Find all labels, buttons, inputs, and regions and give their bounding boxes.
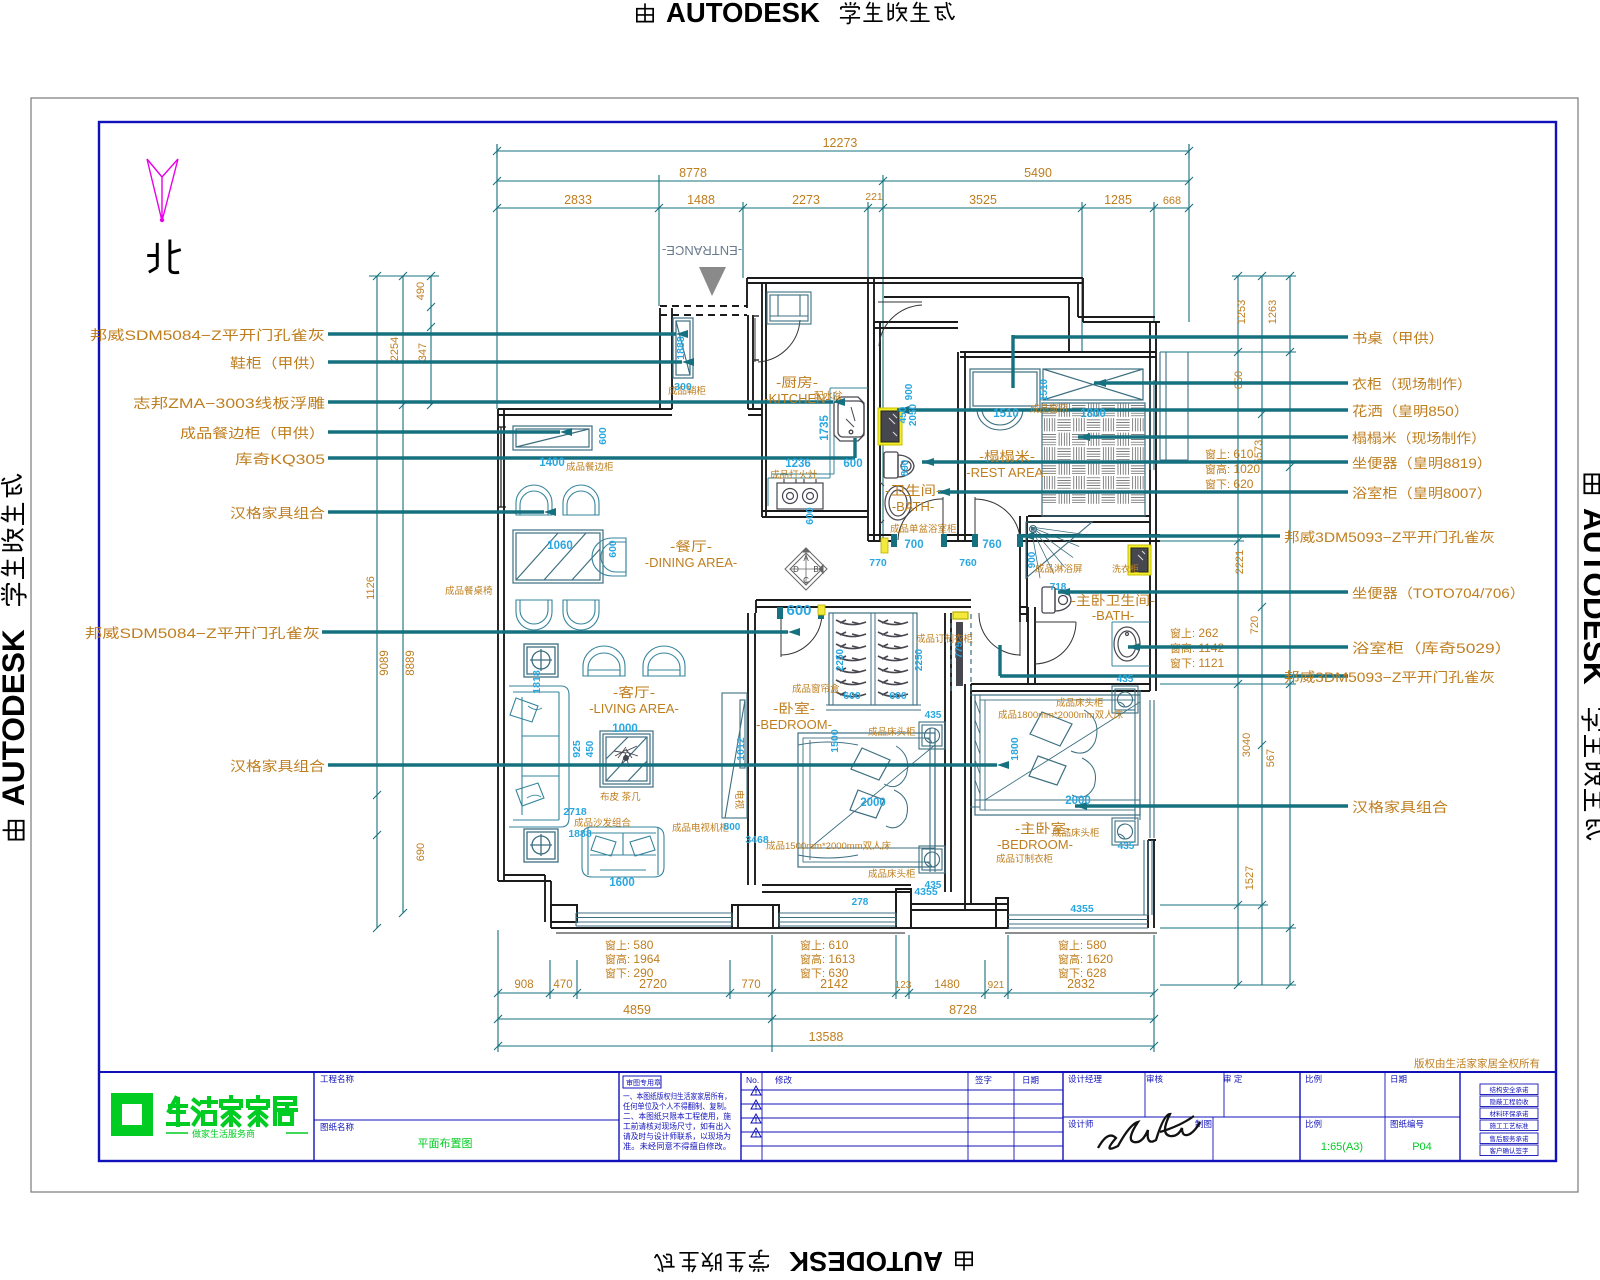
svg-text:邦威3DM5093−Z平开门孔雀灰: 邦威3DM5093−Z平开门孔雀灰 (1284, 530, 1495, 545)
svg-text:2833: 2833 (564, 193, 592, 207)
svg-text:1600: 1600 (609, 877, 635, 889)
svg-text:300: 300 (674, 381, 692, 393)
svg-text:窗上: 580: 窗上: 580 (605, 938, 654, 952)
svg-text:窗上: 610: 窗上: 610 (800, 938, 849, 952)
svg-text:600: 600 (889, 690, 907, 702)
svg-text:成品餐边柜: 成品餐边柜 (566, 461, 614, 473)
svg-text:775: 775 (954, 641, 965, 658)
svg-text:2273: 2273 (792, 193, 820, 207)
svg-text:成品床头柜: 成品床头柜 (868, 726, 916, 738)
svg-text:13588: 13588 (809, 1030, 844, 1044)
svg-text:窗下: 628: 窗下: 628 (1058, 966, 1107, 980)
svg-text:435: 435 (1117, 674, 1134, 685)
svg-text:221: 221 (865, 191, 883, 203)
svg-text:成品床头柜: 成品床头柜 (1052, 827, 1100, 839)
svg-text:图纸名称: 图纸名称 (320, 1122, 355, 1132)
svg-text:窗上: 610: 窗上: 610 (1205, 447, 1254, 461)
svg-text:审核: 审核 (1146, 1074, 1164, 1084)
svg-text:908: 908 (514, 979, 533, 991)
svg-text:结构安全承诺: 结构安全承诺 (1490, 1085, 1530, 1094)
svg-text:567: 567 (1265, 749, 1277, 767)
svg-text:平面布置图: 平面布置图 (418, 1137, 473, 1150)
svg-text:123: 123 (895, 980, 912, 991)
svg-text:客户确认签字: 客户确认签字 (1490, 1146, 1530, 1155)
svg-text:窗高: 1613: 窗高: 1613 (800, 952, 855, 966)
svg-text:435: 435 (925, 710, 942, 721)
svg-text:5490: 5490 (1024, 166, 1052, 180)
svg-text:设计师: 设计师 (1068, 1119, 1094, 1129)
svg-text:日期: 日期 (1390, 1074, 1407, 1084)
svg-text:925: 925 (571, 740, 583, 758)
svg-text:-厨房-: -厨房- (776, 375, 818, 390)
svg-text:一、本图纸版权归生活家家居所有，: 一、本图纸版权归生活家家居所有， (623, 1091, 731, 1101)
svg-text:浴室柜（库奇5029）: 浴室柜（库奇5029） (1352, 640, 1512, 656)
svg-text:售后服务承诺: 售后服务承诺 (1490, 1134, 1530, 1143)
svg-text:770: 770 (741, 979, 760, 991)
svg-text:窗下: 1121: 窗下: 1121 (1170, 656, 1225, 670)
svg-text:窗高: 1020: 窗高: 1020 (1205, 462, 1260, 476)
svg-text:坐便器（皇明8819）: 坐便器（皇明8819） (1352, 456, 1492, 471)
svg-text:-BATH-: -BATH- (892, 499, 934, 514)
svg-text:1527: 1527 (1244, 866, 1256, 890)
svg-text:600: 600 (607, 540, 619, 558)
svg-text:-榻榻米-: -榻榻米- (979, 449, 1035, 464)
svg-text:1:65(A3): 1:65(A3) (1321, 1141, 1363, 1153)
svg-text:1285: 1285 (1104, 193, 1132, 207)
svg-text:榻榻米（现场制作）: 榻榻米（现场制作） (1352, 431, 1486, 446)
svg-text:-卧室-: -卧室- (773, 701, 815, 716)
svg-text:921: 921 (988, 980, 1005, 991)
svg-text:设计经理: 设计经理 (1068, 1074, 1103, 1084)
svg-text:比例: 比例 (1305, 1119, 1322, 1129)
svg-text:窗上: 580: 窗上: 580 (1058, 938, 1107, 952)
svg-text:施工工艺标准: 施工工艺标准 (1490, 1121, 1530, 1130)
svg-text:配水盆: 配水盆 (814, 390, 843, 402)
svg-text:2718: 2718 (563, 806, 587, 818)
svg-text:衣柜（现场制作）: 衣柜（现场制作） (1352, 377, 1472, 392)
svg-text:准。未经同意不得擅自修改。: 准。未经同意不得擅自修改。 (623, 1141, 731, 1151)
svg-text:材料环保承诺: 材料环保承诺 (1490, 1109, 1530, 1118)
svg-text:1236: 1236 (785, 458, 811, 470)
svg-text:成品餐桌椅: 成品餐桌椅 (445, 585, 493, 597)
svg-text:图纸编号: 图纸编号 (1390, 1119, 1424, 1129)
svg-text:12273: 12273 (823, 136, 858, 150)
svg-text:B: B (813, 565, 818, 574)
svg-text:1800: 1800 (1009, 737, 1021, 761)
svg-text:汉格家具组合: 汉格家具组合 (1352, 799, 1449, 815)
svg-text:600: 600 (843, 458, 862, 470)
svg-text:工程名称: 工程名称 (320, 1074, 355, 1084)
svg-text:668: 668 (1163, 195, 1181, 207)
svg-text:成品1500mm*2000mm双人床: 成品1500mm*2000mm双人床 (766, 840, 892, 852)
svg-text:-主卧卫生间-: -主卧卫生间- (1071, 593, 1155, 608)
svg-text:1500: 1500 (829, 729, 841, 753)
svg-text:志邦ZMA−3003线板浮雕: 志邦ZMA−3003线板浮雕 (133, 396, 326, 411)
svg-text:1000: 1000 (612, 723, 638, 735)
svg-text:600: 600 (597, 427, 609, 445)
svg-text:审图专用章: 审图专用章 (626, 1078, 661, 1087)
svg-text:窗下: 630: 窗下: 630 (800, 966, 849, 980)
svg-text:汉格家具组合: 汉格家具组合 (230, 758, 326, 774)
svg-text:1510: 1510 (993, 408, 1019, 420)
svg-text:二、本图纸只限本工程使用，施: 二、本图纸只限本工程使用，施 (623, 1111, 731, 1121)
svg-text:成品床头柜: 成品床头柜 (868, 868, 916, 880)
svg-text:600: 600 (786, 602, 811, 619)
svg-text:请及时与设计师联系，以现场为: 请及时与设计师联系，以现场为 (623, 1131, 731, 1141)
svg-text:成品订制衣柜: 成品订制衣柜 (996, 853, 1054, 865)
svg-text:900: 900 (904, 383, 915, 400)
svg-text:3468: 3468 (745, 834, 769, 846)
svg-text:8778: 8778 (679, 166, 707, 180)
svg-text:-BEDROOM-: -BEDROOM- (756, 717, 832, 732)
svg-text:9089: 9089 (379, 650, 391, 676)
svg-text:800: 800 (724, 822, 741, 833)
svg-text:-DINING AREA-: -DINING AREA- (645, 555, 737, 570)
svg-text:-REST AREA-: -REST AREA- (966, 465, 1047, 480)
svg-text:1888: 1888 (675, 336, 687, 360)
svg-text:-BEDROOM-: -BEDROOM- (997, 837, 1073, 852)
svg-text:1800: 1800 (1080, 408, 1106, 420)
svg-text:1888: 1888 (568, 828, 592, 840)
svg-text:890: 890 (900, 459, 911, 476)
svg-text:邦威3DM5093−Z平开门孔雀灰: 邦威3DM5093−Z平开门孔雀灰 (1284, 670, 1495, 685)
svg-text:347: 347 (417, 343, 429, 361)
svg-text:电视: 电视 (733, 790, 745, 810)
svg-text:成品窗帘: 成品窗帘 (1030, 403, 1068, 415)
svg-text:2050: 2050 (908, 403, 919, 426)
svg-text:D: D (793, 565, 799, 574)
svg-text:窗上: 262: 窗上: 262 (1170, 626, 1219, 640)
svg-text:2221: 2221 (1234, 550, 1246, 574)
svg-text:690: 690 (415, 843, 427, 861)
svg-text:-卫生间-: -卫生间- (885, 483, 941, 498)
svg-text:成品打火灶: 成品打火灶 (770, 469, 818, 481)
svg-text:坐便器（TOTO704/706）: 坐便器（TOTO704/706） (1352, 586, 1525, 601)
svg-text:720: 720 (1249, 616, 1261, 634)
svg-text:比例: 比例 (1305, 1074, 1322, 1084)
svg-text:1480: 1480 (934, 979, 960, 991)
svg-text:8728: 8728 (949, 1003, 977, 1017)
svg-text:1012: 1012 (735, 737, 747, 761)
svg-text:工前请核对现场尺寸，如有出入: 工前请核对现场尺寸，如有出入 (623, 1121, 731, 1131)
svg-text:900: 900 (1027, 551, 1038, 568)
svg-text:-LIVING AREA-: -LIVING AREA- (589, 701, 679, 716)
svg-text:278: 278 (852, 897, 869, 908)
svg-text:1488: 1488 (687, 193, 715, 207)
svg-text:470: 470 (553, 979, 572, 991)
svg-text:650: 650 (1233, 371, 1245, 389)
svg-text:4355: 4355 (1070, 903, 1094, 915)
svg-text:成品床头柜: 成品床头柜 (1056, 697, 1104, 709)
svg-text:1400: 1400 (539, 457, 565, 469)
svg-text:汉格家具组合: 汉格家具组合 (230, 505, 326, 521)
svg-text:760: 760 (959, 557, 977, 569)
svg-text:成品电视机柜: 成品电视机柜 (672, 822, 730, 834)
svg-text:-餐厅-: -餐厅- (670, 539, 712, 554)
svg-text:700: 700 (904, 539, 923, 551)
svg-text:770: 770 (869, 557, 887, 569)
svg-text:成品单盆浴室柜: 成品单盆浴室柜 (890, 523, 957, 535)
svg-text:洗衣柜: 洗衣柜 (1112, 563, 1139, 574)
svg-text:成品餐边柜（甲供）: 成品餐边柜（甲供） (180, 426, 325, 441)
svg-text:修改: 修改 (775, 1075, 793, 1085)
svg-text:日期: 日期 (1022, 1075, 1039, 1085)
svg-text:450: 450 (585, 740, 596, 757)
svg-text:库奇KQ305: 库奇KQ305 (235, 451, 325, 467)
svg-text:718: 718 (1050, 582, 1067, 593)
svg-text:1510: 1510 (1039, 378, 1050, 401)
svg-text:窗下: 620: 窗下: 620 (1205, 477, 1254, 491)
svg-text:-BATH-: -BATH- (1092, 608, 1134, 623)
svg-text:3040: 3040 (1241, 733, 1253, 757)
svg-text:2250: 2250 (835, 648, 846, 671)
svg-text:隐蔽工程验收: 隐蔽工程验收 (1490, 1097, 1530, 1106)
svg-text:浴室柜（皇明8007）: 浴室柜（皇明8007） (1352, 485, 1492, 501)
svg-text:435: 435 (1118, 841, 1135, 852)
svg-text:布皮 茶几: 布皮 茶几 (600, 791, 641, 803)
svg-text:1818: 1818 (531, 670, 543, 694)
svg-text:邦威SDM5084−Z平开门孔雀灰: 邦威SDM5084−Z平开门孔雀灰 (85, 626, 320, 641)
svg-text:成品窗帘盒: 成品窗帘盒 (792, 683, 840, 695)
svg-text:1060: 1060 (547, 540, 573, 552)
svg-text:-ENTRANCE-: -ENTRANCE- (662, 243, 742, 258)
svg-text:1263: 1263 (1267, 300, 1279, 324)
svg-text:C: C (803, 576, 809, 585)
svg-text:600: 600 (843, 690, 861, 702)
svg-text:A: A (803, 554, 809, 563)
svg-text:1126: 1126 (365, 576, 377, 600)
svg-text:书桌（甲供）: 书桌（甲供） (1352, 331, 1444, 346)
svg-text:4859: 4859 (623, 1003, 651, 1017)
svg-text:1253: 1253 (1236, 300, 1248, 324)
svg-text:窗高: 1620: 窗高: 1620 (1058, 952, 1113, 966)
svg-text:8889: 8889 (405, 650, 417, 676)
svg-text:P04: P04 (1412, 1141, 1432, 1153)
svg-text:任何单位及个人不得翻制、复制。: 任何单位及个人不得翻制、复制。 (623, 1101, 731, 1111)
svg-text:做家生活服务商: 做家生活服务商 (192, 1128, 255, 1139)
svg-text:760: 760 (982, 539, 1001, 551)
svg-text:600: 600 (804, 507, 816, 525)
svg-text:花洒（皇明850）: 花洒（皇明850） (1352, 404, 1469, 419)
svg-text:成品淋浴屏: 成品淋浴屏 (1035, 563, 1083, 575)
svg-text:成品1800mm*2000mm双人床: 成品1800mm*2000mm双人床 (998, 709, 1124, 721)
svg-text:审 定: 审 定 (1223, 1074, 1243, 1084)
svg-text:签字: 签字 (975, 1075, 992, 1085)
svg-text:1735: 1735 (819, 415, 831, 441)
svg-text:2250: 2250 (914, 648, 925, 671)
svg-text:3525: 3525 (969, 193, 997, 207)
svg-text:2000: 2000 (1065, 795, 1091, 807)
svg-text:2000: 2000 (860, 797, 886, 809)
svg-text:-客厅-: -客厅- (613, 685, 655, 700)
svg-text:鞋柜（甲供）: 鞋柜（甲供） (230, 356, 325, 371)
svg-text:490: 490 (415, 282, 427, 300)
svg-text:版权由生活家家居全权所有: 版权由生活家家居全权所有 (1414, 1057, 1540, 1070)
svg-text:窗高: 1964: 窗高: 1964 (605, 952, 660, 966)
svg-text:4355: 4355 (914, 886, 938, 898)
svg-text:2254: 2254 (389, 337, 401, 361)
svg-text:邦威SDM5084−Z平开门孔雀灰: 邦威SDM5084−Z平开门孔雀灰 (90, 328, 325, 343)
svg-text:No.: No. (746, 1075, 759, 1085)
svg-text:窗下: 290: 窗下: 290 (605, 966, 654, 980)
